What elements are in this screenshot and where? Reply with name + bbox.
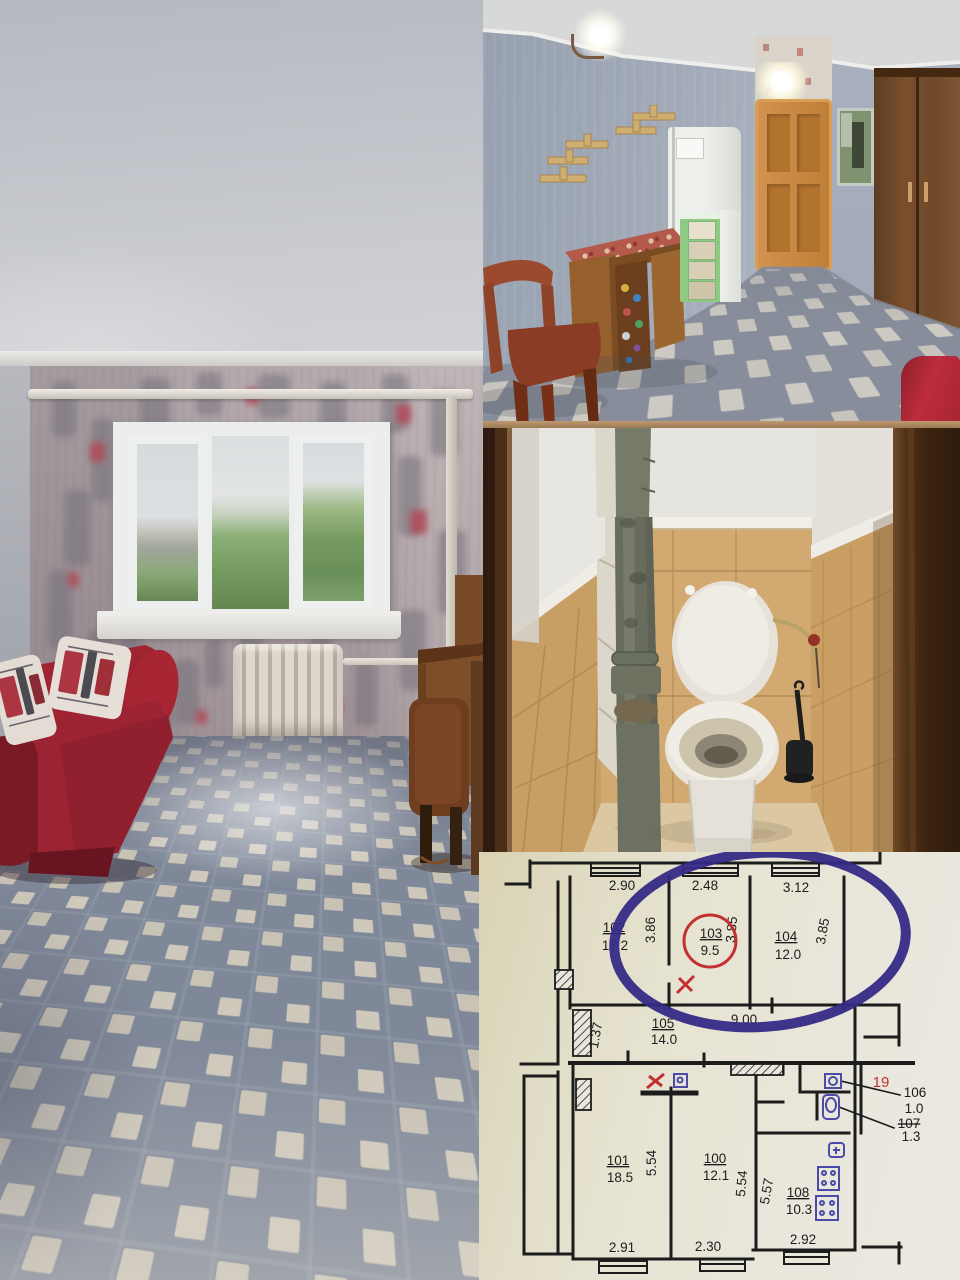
svg-text:2.91: 2.91 <box>609 1240 635 1255</box>
svg-text:1.0: 1.0 <box>905 1101 924 1116</box>
svg-text:1.3: 1.3 <box>902 1129 921 1144</box>
svg-text:103: 103 <box>700 926 723 941</box>
svg-text:5.54: 5.54 <box>644 1149 659 1176</box>
svg-text:106: 106 <box>904 1085 927 1100</box>
svg-text:104: 104 <box>775 929 798 944</box>
svg-text:12.0: 12.0 <box>775 947 801 962</box>
svg-text:3.12: 3.12 <box>783 880 809 895</box>
svg-text:9.5: 9.5 <box>701 943 720 958</box>
svg-text:3.86: 3.86 <box>643 917 658 943</box>
svg-text:2.92: 2.92 <box>790 1232 816 1247</box>
svg-text:100: 100 <box>704 1151 727 1166</box>
svg-text:101: 101 <box>607 1153 630 1168</box>
svg-text:5.54: 5.54 <box>733 1169 750 1197</box>
svg-text:14.0: 14.0 <box>651 1032 677 1047</box>
svg-text:2.30: 2.30 <box>695 1239 721 1254</box>
svg-text:108: 108 <box>787 1185 810 1200</box>
svg-text:18.5: 18.5 <box>607 1170 633 1185</box>
svg-text:12.1: 12.1 <box>703 1168 729 1183</box>
svg-text:10.3: 10.3 <box>786 1202 812 1217</box>
svg-text:2.48: 2.48 <box>692 878 718 893</box>
svg-text:19: 19 <box>873 1074 890 1091</box>
svg-text:2.90: 2.90 <box>609 878 635 893</box>
